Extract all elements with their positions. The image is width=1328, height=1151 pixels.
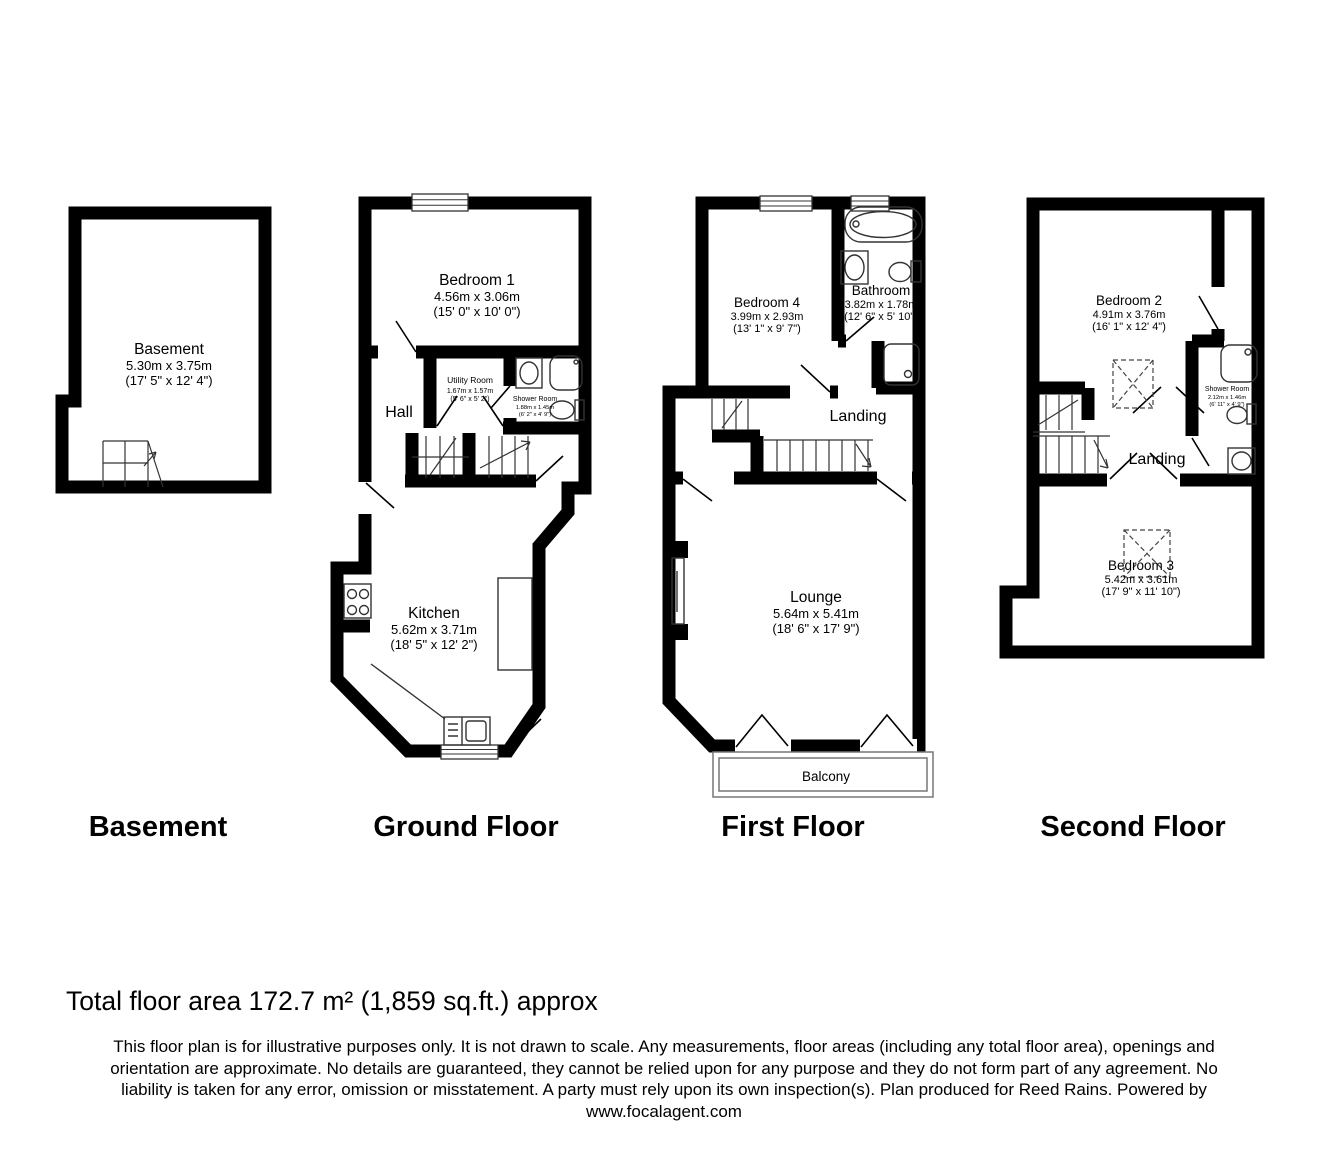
ground-shower-sink-icon (516, 358, 542, 388)
basement-stairs (103, 441, 163, 487)
ground-shower-imperial: (6' 2" x 4' 9") (519, 412, 551, 418)
disclaimer-line: www.focalagent.com (0, 1101, 1328, 1123)
second-floorplan: Bedroom 2 4.91m x 3.76m (16' 1" x 12' 4"… (1006, 204, 1258, 652)
ground-kitchen-window (441, 745, 498, 759)
bathroom-name: Bathroom (852, 283, 911, 298)
lounge-name: Lounge (790, 589, 842, 606)
basement-title: Basement (89, 811, 228, 844)
basement-floorplan: Basement 5.30m x 3.75m (17' 5" x 12' 4") (62, 213, 265, 487)
utility-imperial: (5' 6" x 5' 2") (450, 396, 489, 403)
bedroom4-name: Bedroom 4 (734, 295, 801, 310)
lounge-imperial: (18' 6" x 17' 9") (772, 621, 859, 636)
first-window-right (851, 196, 889, 211)
bathroom-imperial: (12' 6" x 5' 10") (844, 311, 918, 323)
ground-shower-tray-icon (550, 356, 582, 390)
kitchen-imperial: (18' 5" x 12' 2") (390, 637, 477, 652)
ground-floorplan: Bedroom 1 4.56m x 3.06m (15' 0" x 10' 0"… (337, 194, 585, 759)
first-window-left (760, 196, 812, 211)
bedroom3-imperial: (17' 9" x 11' 10") (1101, 586, 1180, 598)
floorplan-drawing: Basement 5.30m x 3.75m (17' 5" x 12' 4") (0, 0, 1328, 1151)
bedroom2-name: Bedroom 2 (1096, 293, 1162, 308)
second-shower-imperial: (6' 11" x 4' 9") (1209, 402, 1244, 408)
bedroom2-imperial: (16' 1" x 12' 4") (1092, 321, 1166, 333)
basement-room-name: Basement (134, 341, 204, 358)
kitchen-name: Kitchen (408, 605, 460, 622)
fireplace-icon (669, 541, 688, 640)
bedroom2-metric: 4.91m x 3.76m (1093, 309, 1166, 321)
bathtub-icon (845, 207, 922, 242)
second-shower-metric: 2.12m x 1.46m (1208, 395, 1247, 401)
bedroom4-metric: 3.99m x 2.93m (731, 311, 804, 323)
hall-name: Hall (385, 404, 413, 421)
bedroom3-name: Bedroom 3 (1108, 558, 1174, 573)
basement-room-imperial: (17' 5" x 12' 4") (125, 373, 212, 388)
bathroom-sink-icon (841, 251, 868, 284)
second-title: Second Floor (1040, 811, 1225, 844)
second-interior-walls (1033, 204, 1258, 480)
first-floorplan: Bedroom 4 3.99m x 2.93m (13' 1" x 9' 7")… (669, 196, 933, 797)
french-door-gap-left (735, 739, 791, 753)
lounge-metric: 5.64m x 5.41m (773, 606, 859, 621)
ground-title: Ground Floor (373, 811, 558, 844)
balcony-name: Balcony (802, 769, 850, 784)
stove-icon (344, 584, 371, 618)
kitchen-sink-icon (444, 717, 490, 745)
first-title: First Floor (721, 811, 864, 844)
bathroom-metric: 3.82m x 1.78m (845, 299, 918, 311)
disclaimer-line: liability is taken for any error, omissi… (0, 1079, 1328, 1101)
bedroom4-imperial: (13' 1" x 9' 7") (733, 323, 801, 335)
disclaimer-line: This floor plan is for illustrative purp… (0, 1036, 1328, 1058)
ground-shower-metric: 1.88m x 1.45m (516, 405, 555, 411)
bedroom1-imperial: (15' 0" x 10' 0") (433, 304, 520, 319)
floorplan-page: Basement 5.30m x 3.75m (17' 5" x 12' 4") (0, 0, 1328, 1151)
kitchen-metric: 5.62m x 3.71m (391, 622, 477, 637)
first-landing-name: Landing (830, 408, 887, 425)
second-stairs (1033, 395, 1110, 473)
bedroom1-metric: 4.56m x 3.06m (434, 289, 520, 304)
ground-top-window (412, 194, 468, 211)
utility-metric: 1.67m x 1.57m (447, 388, 493, 395)
utility-name: Utility Room (447, 375, 493, 385)
disclaimer: This floor plan is for illustrative purp… (0, 1036, 1328, 1122)
disclaimer-line: orientation are approximate. No details … (0, 1058, 1328, 1080)
bedroom1-name: Bedroom 1 (439, 272, 515, 289)
bedroom3-metric: 5.42m x 3.61m (1105, 574, 1178, 586)
second-landing-name: Landing (1129, 451, 1186, 468)
second-shower-name: Shower Room (1205, 386, 1250, 393)
ground-shower-name: Shower Room (513, 396, 558, 403)
total-floor-area: Total floor area 172.7 m² (1,859 sq.ft.)… (66, 986, 598, 1017)
basement-room-metric: 5.30m x 3.75m (126, 358, 212, 373)
second-sink-icon (1228, 448, 1255, 474)
